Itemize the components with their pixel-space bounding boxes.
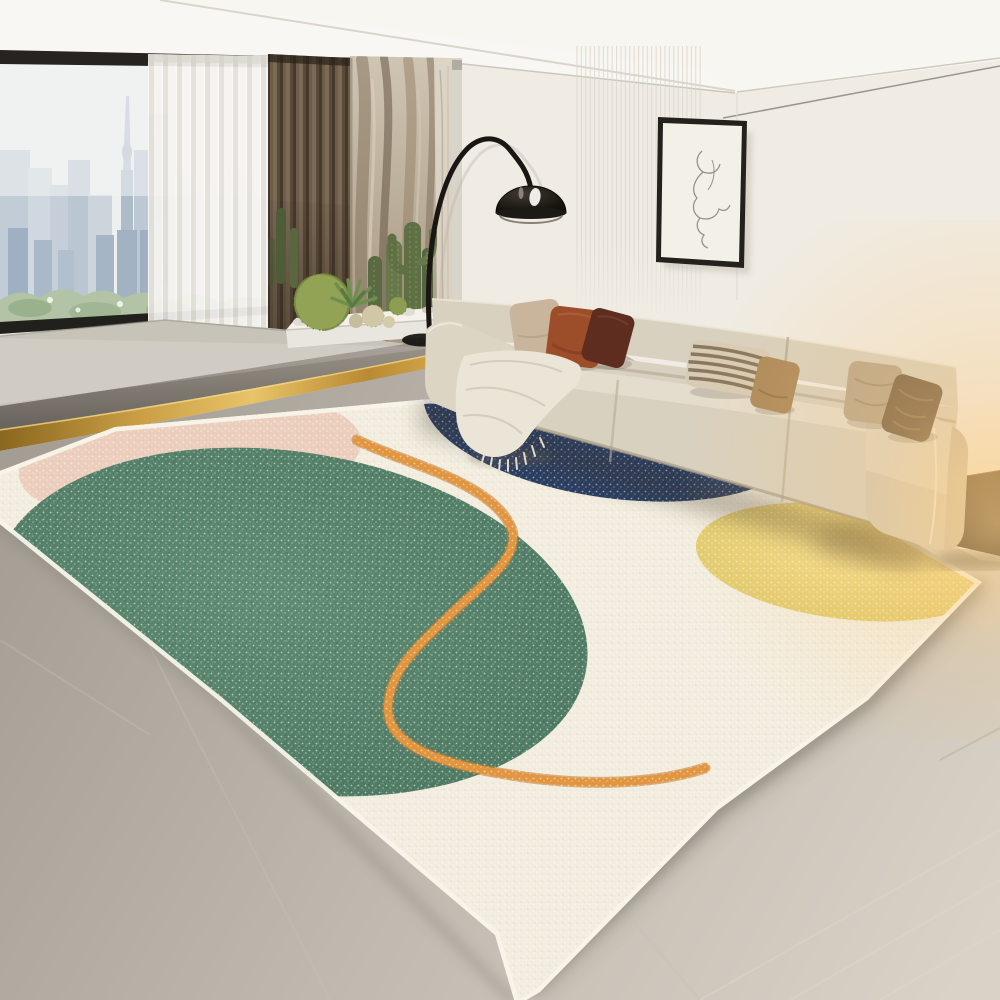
living-room-scene [0,0,1000,1000]
light-glow-overlay [680,220,1000,740]
sheer-curtain [148,54,274,340]
product-photo: Modern living room with abstract speckle… [0,0,1000,1000]
lamp-shade-rim [496,207,566,219]
